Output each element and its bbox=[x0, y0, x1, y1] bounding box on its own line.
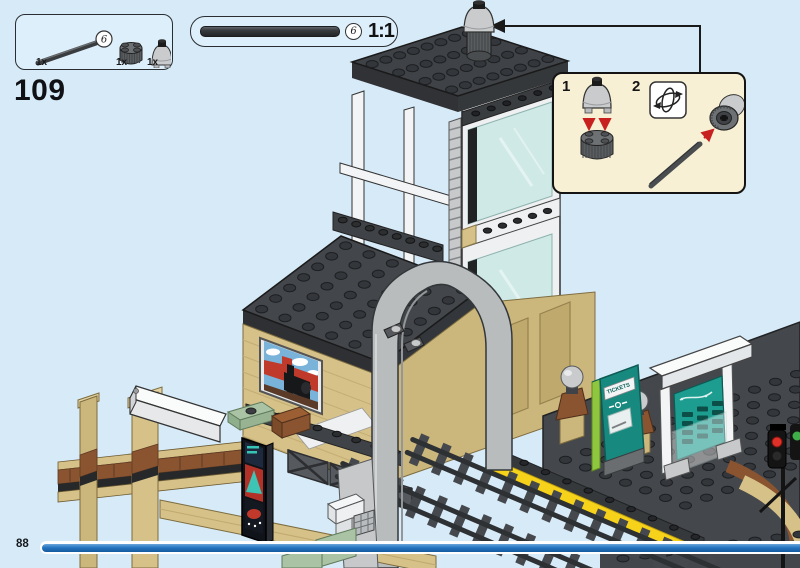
part-count: 1x bbox=[147, 57, 158, 68]
part-count: 1x bbox=[116, 57, 127, 68]
progress-track bbox=[40, 541, 800, 554]
rotate-3d-icon bbox=[650, 82, 686, 118]
part-count: 1x bbox=[36, 57, 47, 68]
substep2-assembled-part bbox=[710, 91, 744, 130]
instruction-page: TICKETS bbox=[0, 0, 800, 568]
axle-actual-size bbox=[200, 26, 340, 37]
callout-6-number: 6 bbox=[101, 35, 108, 46]
scale-1to1-box: 6 1:1 bbox=[190, 16, 398, 47]
page-number: 88 bbox=[16, 538, 29, 550]
placed-dome-assembly bbox=[464, 0, 494, 61]
red-arrow-insert bbox=[704, 130, 713, 138]
scale-label: 1:1 bbox=[368, 20, 394, 43]
ticket-machine: TICKETS bbox=[592, 365, 644, 476]
subassembly-graphics bbox=[554, 74, 744, 192]
substep2-axle bbox=[650, 142, 701, 186]
city-poster bbox=[242, 438, 273, 543]
parts-callout-box: 6 1x 1x 1x bbox=[15, 14, 173, 70]
substep1-round-brick bbox=[581, 131, 613, 160]
callout-6-badge: 6 bbox=[345, 23, 362, 40]
callout-6-number: 6 bbox=[350, 26, 356, 37]
substep1-dome bbox=[583, 77, 611, 113]
progress-bar bbox=[42, 544, 800, 552]
step-number: 109 bbox=[14, 74, 66, 108]
red-light bbox=[772, 437, 782, 447]
subassembly-box: 1 2 bbox=[552, 72, 746, 194]
platform-lamp bbox=[556, 366, 588, 444]
door-panel bbox=[540, 302, 570, 404]
